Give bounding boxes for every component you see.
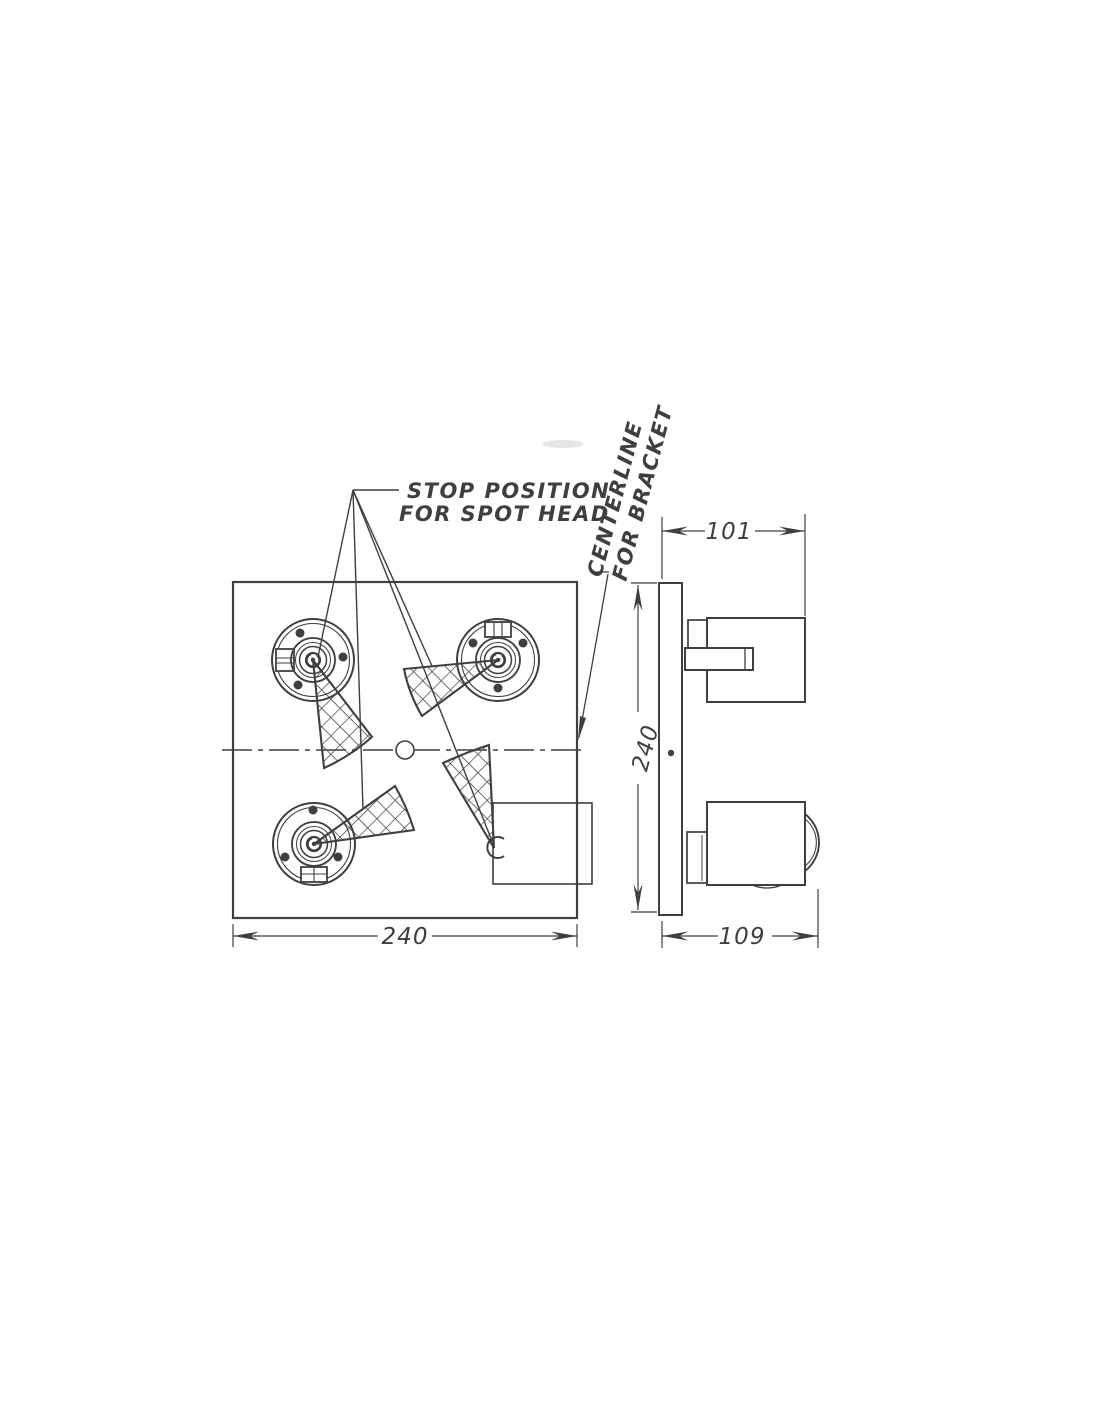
spot-head-bottom-left: [273, 803, 355, 885]
print-smudge: [542, 440, 584, 448]
dimension-bracket-depth-value: 101: [706, 519, 753, 545]
dimension-front-width-value: 240: [382, 924, 429, 950]
lamp-body-top: [685, 618, 805, 702]
screw-icon: [296, 629, 305, 638]
lamp-housing-bottom: [707, 802, 805, 885]
side-view: 101 240 109: [627, 514, 819, 950]
screw-icon: [519, 639, 528, 648]
screw-icon: [339, 653, 348, 662]
stop-position-label-line2: FOR SPOT HEAD: [399, 502, 610, 526]
spot-head-top-left: [272, 619, 354, 701]
center-mark: [396, 741, 414, 759]
spotlight-mounting-drawing: 240 101: [0, 0, 1100, 1422]
screw-icon: [294, 681, 303, 690]
screw-icon: [469, 639, 478, 648]
lens-rim: [805, 814, 819, 871]
stop-fan-top-right: [404, 660, 498, 716]
screw-icon: [494, 684, 503, 693]
bracket-bottom: [687, 832, 707, 883]
screw-icon: [281, 853, 290, 862]
pivot-arm-top: [685, 648, 753, 670]
plate-side: [659, 583, 682, 915]
screw-icon: [334, 853, 343, 862]
front-view: 240: [222, 490, 592, 950]
stop-fan-bottom-right: [443, 745, 494, 848]
spot-head-top-right: [457, 619, 539, 701]
stop-position-label-line1: STOP POSITION: [407, 479, 610, 503]
dimension-overall-depth-value: 109: [719, 924, 766, 950]
centerline-leader: [579, 572, 609, 737]
centerline-leader-arrow-icon: [578, 716, 586, 741]
stop-fan-hook: [487, 837, 504, 858]
screw-icon: [309, 806, 318, 815]
cable-clamp: [485, 622, 511, 637]
technical-drawing-sheet: 240 101: [0, 0, 1100, 1422]
mounting-dot: [668, 750, 674, 756]
lamp-body-bottom: [687, 802, 819, 888]
stop-fan-top-left: [313, 660, 372, 768]
